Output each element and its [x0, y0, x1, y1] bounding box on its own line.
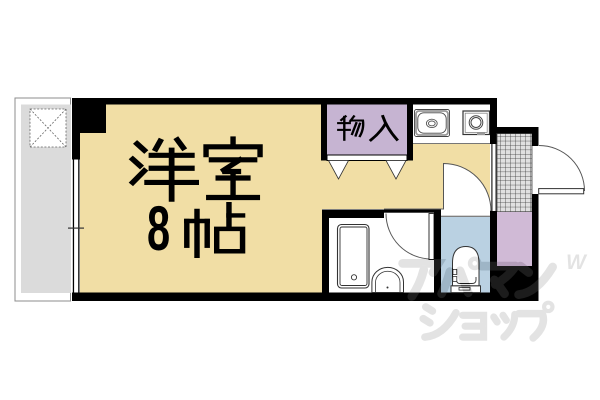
- svg-text:W: W: [566, 251, 588, 274]
